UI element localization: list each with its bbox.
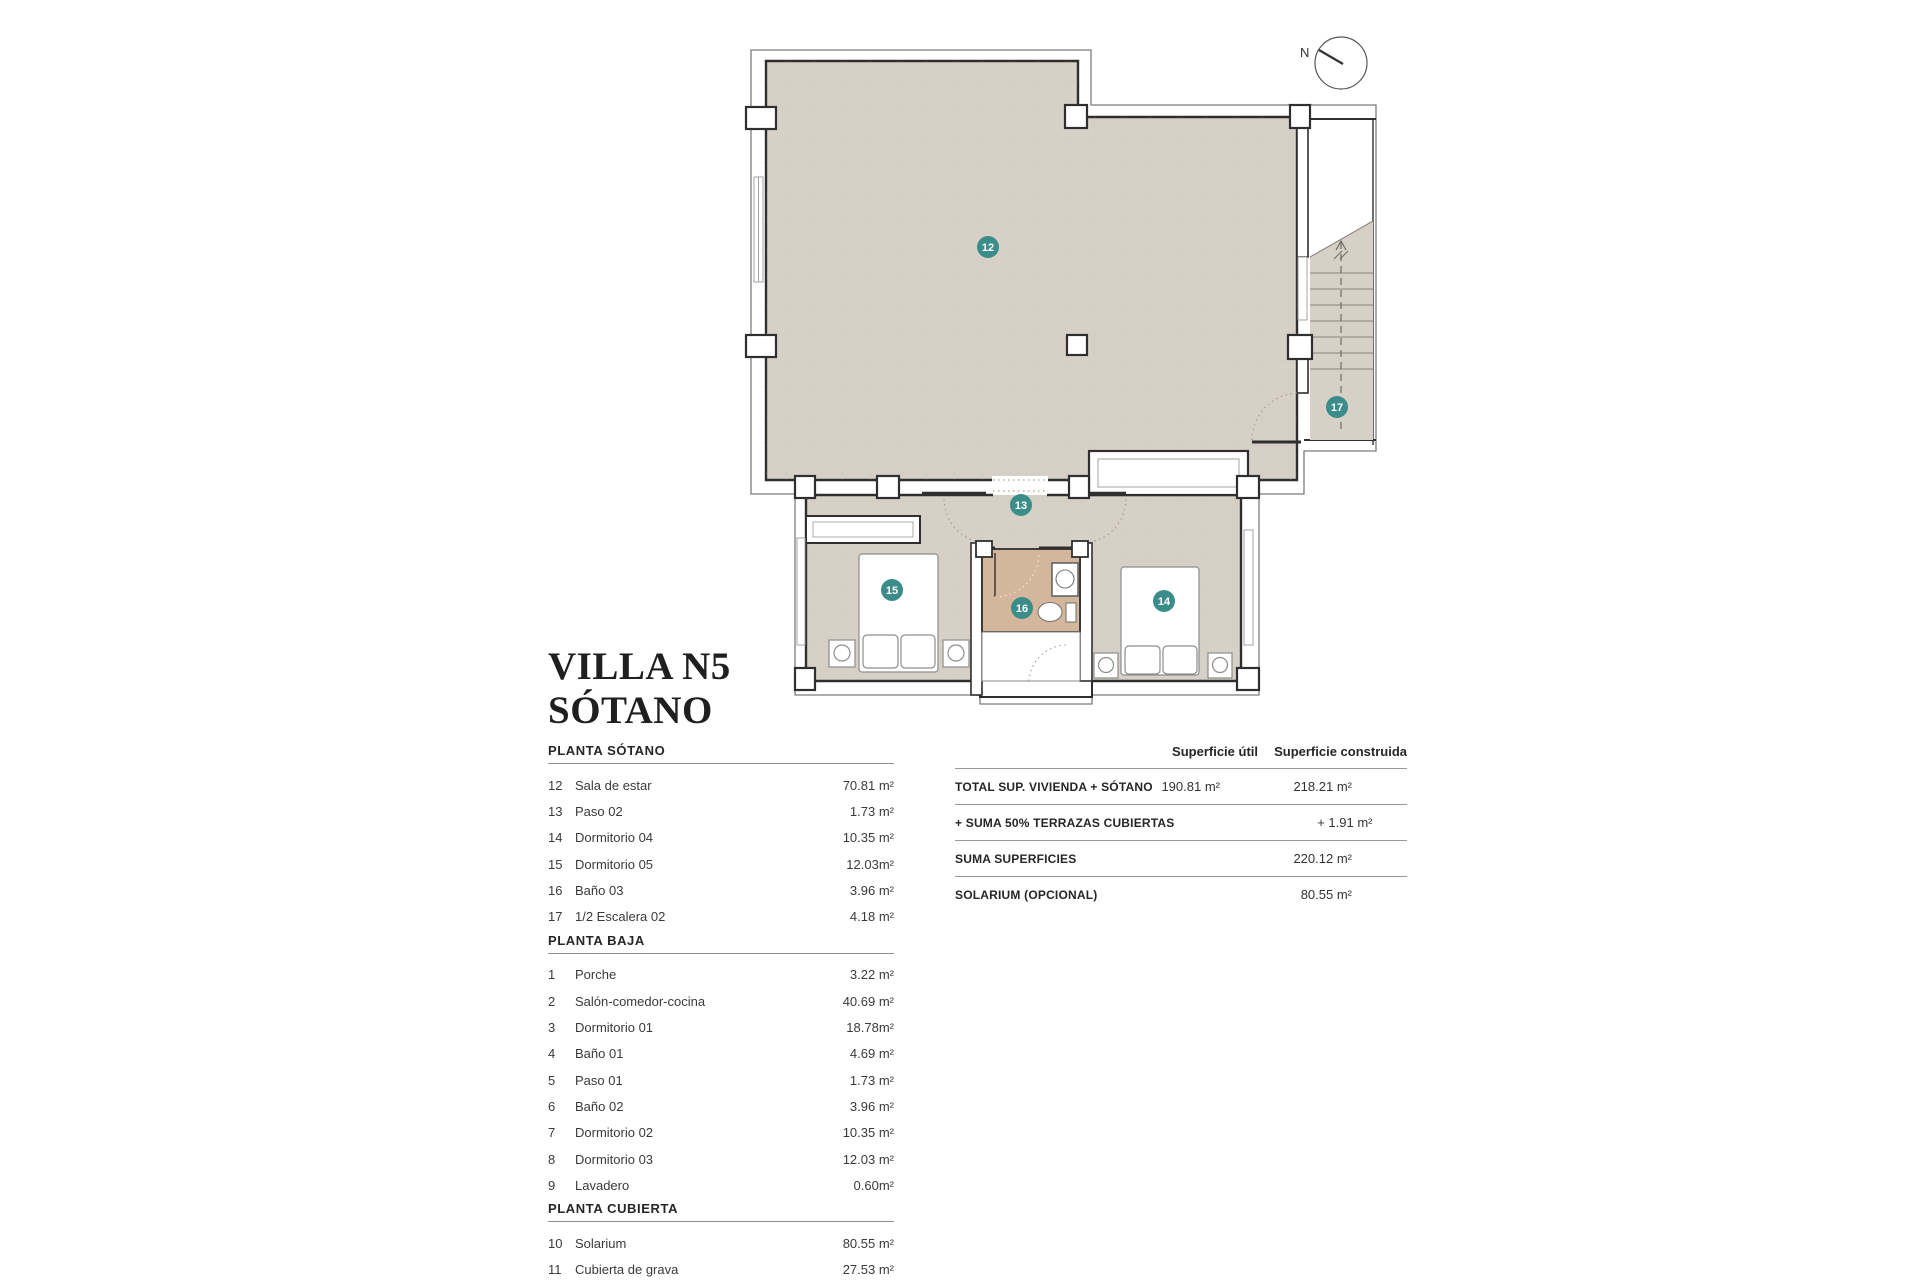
col-header-superficie-util: Superficie útil [1158, 744, 1258, 759]
room-area: 1.73 m² [850, 804, 894, 819]
room-number: 12 [548, 778, 575, 793]
wall-column [976, 541, 992, 557]
room-badge-15: 15 [881, 579, 903, 601]
room-name: 1/2 Escalera 02 [575, 909, 850, 924]
room-badge-16: 16 [1011, 597, 1033, 619]
room-badge-14: 14 [1153, 590, 1175, 612]
room-row: 10Solarium80.55 m² [548, 1230, 894, 1256]
room14-window-box [1089, 451, 1248, 495]
room-name: Dormitorio 03 [575, 1152, 843, 1167]
room-area: 70.81 m² [843, 778, 894, 793]
room-number: 6 [548, 1099, 575, 1114]
plan-section-header: PLANTA SÓTANO [548, 743, 894, 764]
room-name: Cubierta de grava [575, 1262, 843, 1277]
wall-column [1288, 335, 1312, 359]
room-number: 15 [548, 857, 575, 872]
room-row: 11Cubierta de grava27.53 m² [548, 1257, 894, 1280]
room-name: Lavadero [575, 1178, 854, 1193]
room-area: 18.78m² [846, 1020, 894, 1035]
wall-column [795, 476, 815, 498]
floor-plan: N 121314151617 [730, 25, 1430, 705]
wall-column [795, 668, 815, 690]
room-number: 5 [548, 1073, 575, 1088]
page-title-line1: VILLA N5 [548, 645, 731, 689]
room-badge-12: 12 [977, 236, 999, 258]
room-row: 7Dormitorio 0210.35 m² [548, 1120, 894, 1146]
room-row: 3Dormitorio 0118.78m² [548, 1014, 894, 1040]
north-compass: N [1300, 37, 1367, 89]
room-number: 16 [548, 883, 575, 898]
toilet-icon [1038, 603, 1076, 623]
room-area: 12.03m² [846, 857, 894, 872]
room-name: Salón-comedor-cocina [575, 994, 843, 1009]
summary-row: SOLARIUM (OPCIONAL)80.55 m² [955, 877, 1407, 912]
room-area: 27.53 m² [843, 1262, 894, 1277]
plan-section-header: PLANTA BAJA [548, 933, 894, 954]
room-badge-17: 17 [1326, 396, 1348, 418]
svg-text:15: 15 [886, 585, 898, 597]
room-area: 1.73 m² [850, 1073, 894, 1088]
room-area: 4.18 m² [850, 909, 894, 924]
summary-constr-value: + 1.91 m² [1283, 815, 1428, 830]
room-row: 9Lavadero0.60m² [548, 1172, 894, 1198]
room-area: 4.69 m² [850, 1046, 894, 1061]
room-number: 10 [548, 1236, 575, 1251]
room-area: 3.96 m² [850, 883, 894, 898]
room-name: Baño 03 [575, 883, 850, 898]
wall-column [1065, 105, 1087, 128]
room-number: 8 [548, 1152, 575, 1167]
wall-column [1237, 476, 1259, 498]
room-number: 11 [548, 1262, 575, 1277]
wall-column [1237, 668, 1259, 690]
opening-dotted [992, 476, 1048, 491]
room-row: 5Paso 011.73 m² [548, 1067, 894, 1093]
lamp-icon [1099, 658, 1114, 673]
room-area: 10.35 m² [843, 830, 894, 845]
room-name: Dormitorio 04 [575, 830, 843, 845]
plan-section: PLANTA SÓTANO12Sala de estar70.81 m²13Pa… [548, 743, 894, 930]
svg-text:12: 12 [982, 242, 994, 254]
room15-wall-band [806, 516, 920, 543]
summary-constr-value: 218.21 m² [1262, 779, 1407, 794]
room-name: Baño 01 [575, 1046, 850, 1061]
plan-section-header: PLANTA CUBIERTA [548, 1201, 894, 1222]
shower-step [980, 681, 1092, 697]
floor-plan-drawing: N 121314151617 [730, 25, 1430, 705]
wall-column [746, 107, 776, 129]
window-wing-left [797, 538, 805, 645]
room-row: 4Baño 014.69 m² [548, 1041, 894, 1067]
room-number: 3 [548, 1020, 575, 1035]
room-list: PLANTA SÓTANO12Sala de estar70.81 m²13Pa… [548, 743, 894, 1280]
room-number: 13 [548, 804, 575, 819]
summary-row: + SUMA 50% TERRAZAS CUBIERTAS+ 1.91 m² [955, 805, 1407, 841]
svg-text:16: 16 [1016, 603, 1028, 615]
wall-column [746, 335, 776, 357]
room-row: 171/2 Escalera 024.18 m² [548, 903, 894, 929]
room-name: Porche [575, 967, 850, 982]
room-name: Dormitorio 05 [575, 857, 846, 872]
wall-column [1072, 541, 1088, 557]
summary-constr-value: 220.12 m² [1262, 851, 1407, 866]
wall-column [1290, 105, 1310, 128]
page-title: VILLA N5 SÓTANO [548, 645, 731, 733]
room-number: 9 [548, 1178, 575, 1193]
room-row: 15Dormitorio 0512.03m² [548, 851, 894, 877]
room-row: 14Dormitorio 0410.35 m² [548, 825, 894, 851]
room-name: Sala de estar [575, 778, 843, 793]
room-number: 1 [548, 967, 575, 982]
shower [982, 632, 1080, 681]
room-row: 12Sala de estar70.81 m² [548, 772, 894, 798]
room-area: 3.96 m² [850, 1099, 894, 1114]
wall-column [1069, 476, 1089, 498]
bathroom [971, 541, 1092, 695]
room-row: 16Baño 033.96 m² [548, 877, 894, 903]
wall-column [1067, 335, 1087, 355]
surface-summary-table: Superficie útil Superficie construida TO… [955, 744, 1407, 912]
summary-label: + SUMA 50% TERRAZAS CUBIERTAS [955, 816, 1175, 830]
room-number: 7 [548, 1125, 575, 1140]
window-wing-right [1244, 530, 1253, 645]
summary-label: TOTAL SUP. VIVIENDA + SÓTANO [955, 780, 1154, 794]
summary-constr-value: 80.55 m² [1262, 887, 1407, 902]
lamp-icon [1213, 658, 1228, 673]
plan-section: PLANTA CUBIERTA10Solarium80.55 m²11Cubie… [548, 1201, 894, 1280]
room-area: 40.69 m² [843, 994, 894, 1009]
room-name: Paso 01 [575, 1073, 850, 1088]
summary-util-value: 190.81 m² [1158, 779, 1258, 794]
room-salaestar-floor [766, 61, 1297, 480]
room-badge-13: 13 [1010, 494, 1032, 516]
room-number: 14 [548, 830, 575, 845]
room-area: 3.22 m² [850, 967, 894, 982]
north-label: N [1300, 45, 1309, 60]
room-area: 80.55 m² [843, 1236, 894, 1251]
room-number: 17 [548, 909, 575, 924]
room-row: 13Paso 021.73 m² [548, 798, 894, 824]
page: N 121314151617 VILLA N5 SÓTANO PLANTA SÓ… [0, 0, 1920, 1280]
washbasin-icon [1052, 563, 1078, 596]
summary-header-row: Superficie útil Superficie construida [955, 744, 1407, 769]
room-name: Solarium [575, 1236, 843, 1251]
room-row: 2Salón-comedor-cocina40.69 m² [548, 988, 894, 1014]
lamp-icon [834, 645, 850, 661]
room-row: 8Dormitorio 0312.03 m² [548, 1146, 894, 1172]
summary-row: SUMA SUPERFICIES220.12 m² [955, 841, 1407, 877]
plan-section: PLANTA BAJA1Porche3.22 m²2Salón-comedor-… [548, 933, 894, 1199]
room-row: 6Baño 023.96 m² [548, 1093, 894, 1119]
room-name: Dormitorio 02 [575, 1125, 843, 1140]
room-number: 2 [548, 994, 575, 1009]
summary-label: SUMA SUPERFICIES [955, 852, 1154, 866]
page-title-line2: SÓTANO [548, 689, 731, 733]
room-number: 4 [548, 1046, 575, 1061]
wall-column [877, 476, 899, 498]
summary-row: TOTAL SUP. VIVIENDA + SÓTANO190.81 m²218… [955, 769, 1407, 805]
lamp-icon [948, 645, 964, 661]
col-header-superficie-construida: Superficie construida [1262, 744, 1407, 759]
svg-text:17: 17 [1331, 402, 1343, 414]
room-area: 10.35 m² [843, 1125, 894, 1140]
summary-label: SOLARIUM (OPCIONAL) [955, 888, 1154, 902]
room-row: 1Porche3.22 m² [548, 962, 894, 988]
room-name: Baño 02 [575, 1099, 850, 1114]
room-name: Paso 02 [575, 804, 850, 819]
svg-text:14: 14 [1158, 596, 1171, 608]
svg-text:13: 13 [1015, 500, 1027, 512]
room-area: 12.03 m² [843, 1152, 894, 1167]
room-name: Dormitorio 01 [575, 1020, 846, 1035]
room-area: 0.60m² [854, 1178, 894, 1193]
